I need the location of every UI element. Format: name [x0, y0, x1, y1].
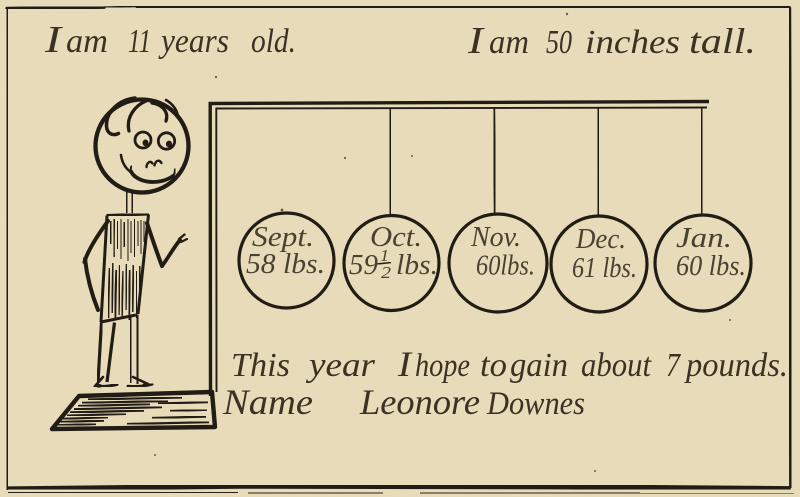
svg-text:Name: Name	[222, 382, 313, 422]
svg-text:This: This	[231, 347, 290, 384]
svg-text:7: 7	[666, 347, 682, 384]
svg-text:years: years	[158, 23, 229, 60]
svg-text:Downes: Downes	[486, 386, 585, 422]
svg-text:pounds.: pounds.	[684, 347, 788, 384]
svg-text:am: am	[489, 24, 529, 61]
svg-text:gain: gain	[510, 347, 568, 384]
svg-text:Jan.: Jan.	[676, 223, 732, 254]
svg-text:old.: old.	[251, 23, 296, 60]
svg-text:I: I	[44, 19, 64, 61]
svg-text:60lbs.: 60lbs.	[476, 251, 535, 282]
svg-text:Oct.: Oct.	[370, 222, 422, 253]
svg-text:Nov.: Nov.	[470, 222, 521, 253]
svg-text:inches: inches	[585, 24, 680, 61]
svg-text:Leonore: Leonore	[359, 382, 480, 422]
svg-text:59: 59	[349, 250, 378, 281]
svg-text:11: 11	[128, 23, 151, 60]
svg-text:58 lbs.: 58 lbs.	[246, 249, 325, 280]
svg-text:year: year	[306, 347, 376, 384]
svg-text:to: to	[480, 347, 507, 384]
svg-text:50: 50	[546, 24, 572, 61]
svg-text:I: I	[397, 344, 413, 384]
svg-text:60 lbs.: 60 lbs.	[676, 251, 746, 282]
svg-text:Dec.: Dec.	[575, 224, 626, 255]
svg-text:lbs.: lbs.	[396, 250, 438, 281]
svg-text:61 lbs.: 61 lbs.	[572, 253, 637, 284]
svg-text:I: I	[467, 20, 486, 62]
svg-text:am: am	[66, 23, 108, 60]
svg-text:hope: hope	[415, 348, 470, 384]
svg-text:2: 2	[381, 263, 392, 282]
svg-text:about: about	[581, 347, 652, 384]
svg-text:tall.: tall.	[689, 21, 756, 61]
